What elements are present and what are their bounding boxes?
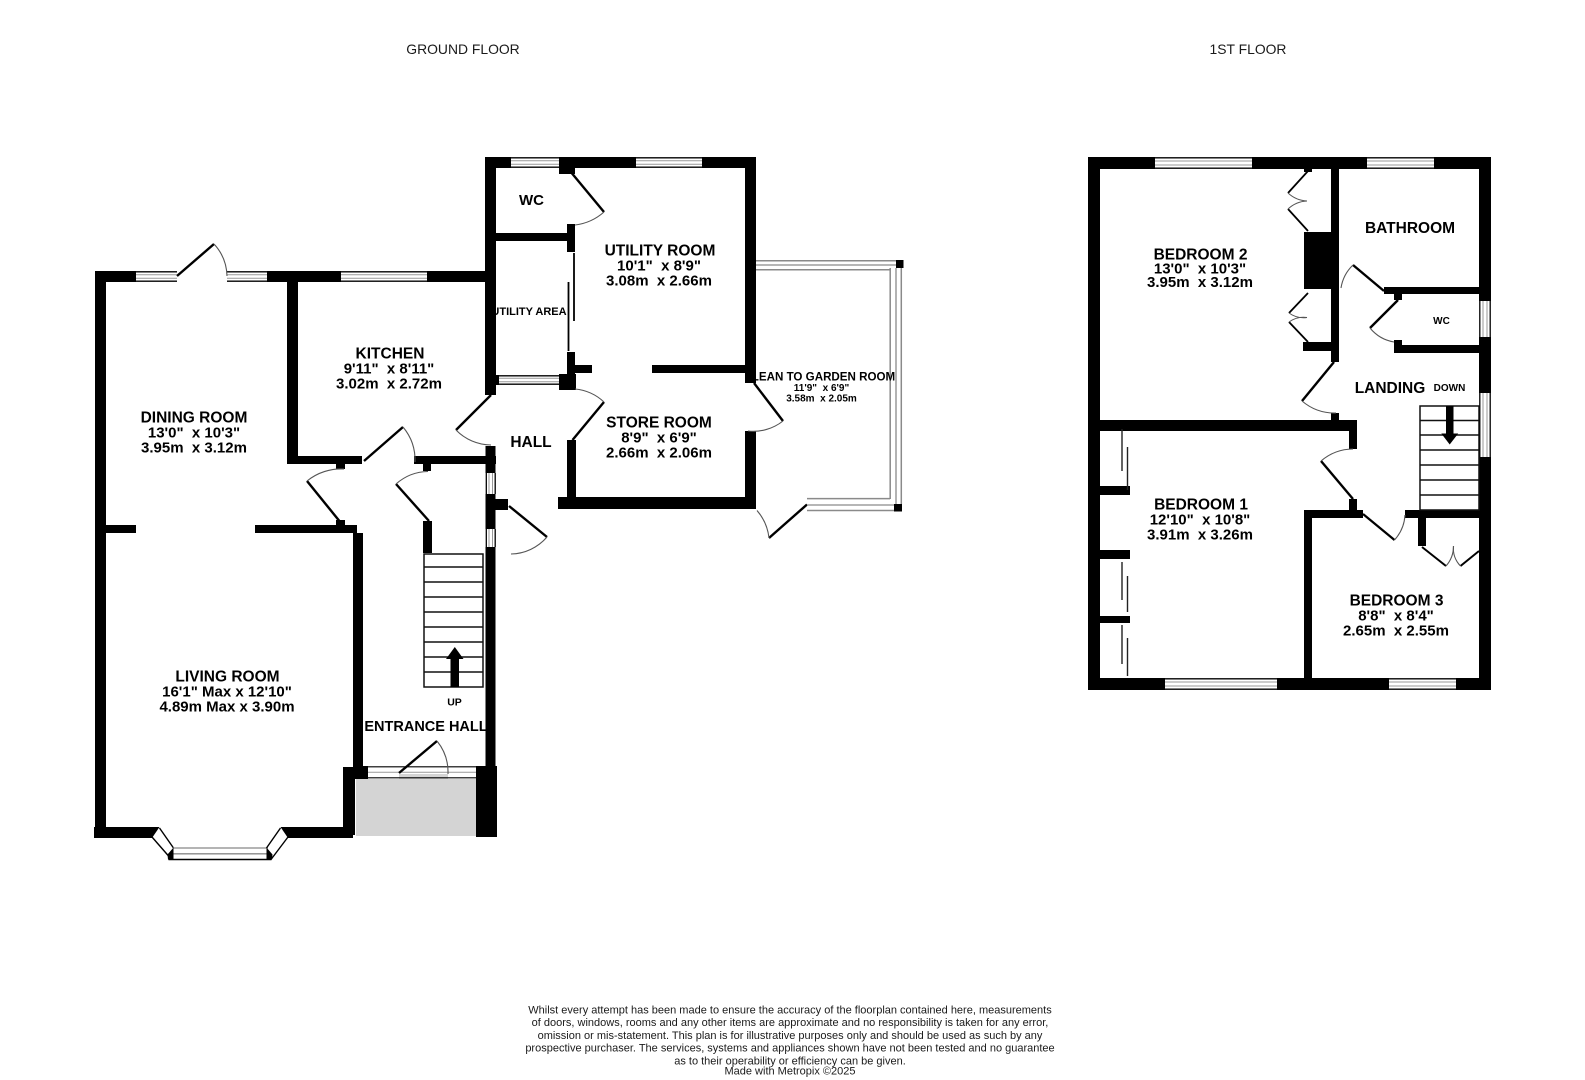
svg-text:2.66m x 2.06m: 2.66m x 2.06m [606,445,712,462]
svg-text:3.08m x 2.66m: 3.08m x 2.66m [606,273,712,290]
svg-text:BATHROOM: BATHROOM [1365,220,1455,237]
svg-text:1ST FLOOR: 1ST FLOOR [1210,41,1287,57]
svg-text:3.95m x 3.12m: 3.95m x 3.12m [1147,274,1253,291]
svg-text:LANDING: LANDING [1355,380,1426,397]
svg-text:prospective purchaser. The ser: prospective purchaser. The services, sys… [525,1043,1054,1055]
svg-text:3.91m x 3.26m: 3.91m x 3.26m [1147,527,1253,544]
svg-text:Made with Metropix ©2025: Made with Metropix ©2025 [724,1066,855,1078]
svg-text:WC: WC [519,192,544,209]
svg-text:GROUND FLOOR: GROUND FLOOR [406,41,519,57]
svg-text:3.58m x 2.05m: 3.58m x 2.05m [786,394,857,405]
svg-text:Whilst every attempt has been: Whilst every attempt has been made to en… [528,1005,1052,1017]
svg-text:omission or mis-statement. Thi: omission or mis-statement. This plan is … [538,1030,1043,1042]
svg-text:LEAN TO GARDEN ROOM: LEAN TO GARDEN ROOM [752,371,895,384]
svg-text:ENTRANCE HALL: ENTRANCE HALL [364,719,487,735]
svg-text:DOWN: DOWN [1434,383,1466,394]
svg-text:2.65m x 2.55m: 2.65m x 2.55m [1343,623,1449,640]
svg-text:3.95m x 3.12m: 3.95m x 3.12m [141,440,247,457]
svg-text:UTILITY AREA: UTILITY AREA [491,306,566,318]
svg-text:3.02m x 2.72m: 3.02m x 2.72m [336,376,442,393]
svg-text:WC: WC [1433,316,1450,327]
svg-text:of doors, windows, rooms and a: of doors, windows, rooms and any other i… [532,1017,1049,1029]
svg-text:11'9" x 6'9": 11'9" x 6'9" [794,383,850,394]
svg-text:HALL: HALL [510,434,551,451]
svg-text:4.89m Max x 3.90m: 4.89m Max x 3.90m [159,699,294,716]
svg-text:UP: UP [447,697,462,709]
